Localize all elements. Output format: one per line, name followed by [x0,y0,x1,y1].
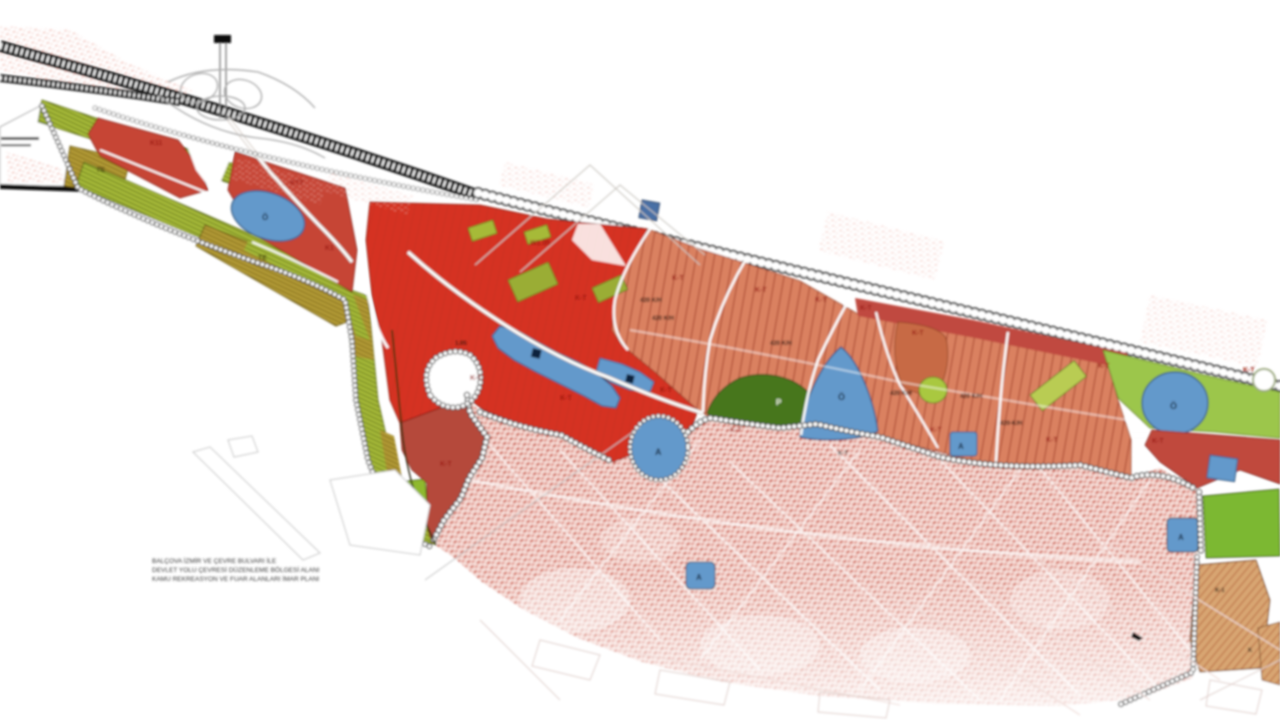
svg-text:TE: TE [96,167,105,174]
svg-text:BALÇOVA İZMİR VE ÇEVRE BULVARI: BALÇOVA İZMİR VE ÇEVRE BULVARI İLE [152,556,277,565]
svg-text:KAMU REKREASYON VE FUAR ALANLA: KAMU REKREASYON VE FUAR ALANLARI İMAR PL… [152,574,319,583]
svg-text:K-T: K-T [560,395,572,402]
svg-text:Ö: Ö [838,392,845,402]
svg-text:K-T: K-T [575,295,587,302]
svg-text:TE: TE [258,255,267,262]
svg-text:A: A [655,447,662,457]
svg-text:K-T: K-T [755,287,767,294]
svg-text:A: A [696,573,702,582]
svg-text:Ö: Ö [262,213,268,222]
svg-text:K-1: K-1 [1215,588,1225,594]
svg-text:K-T: K-T [672,275,684,282]
svg-text:1.05: 1.05 [455,341,467,347]
svg-text:K-T: K-T [815,297,827,304]
svg-text:K-T: K-T [930,427,942,434]
svg-text:K-T: K-T [838,451,848,457]
svg-text:420 K/H: 420 K/H [640,298,662,304]
svg-text:DEVLET YOLU ÇEVRESİ DÜZENLEME: DEVLET YOLU ÇEVRESİ DÜZENLEME BÖLGESİ AL… [152,565,320,574]
svg-text:K-T: K-T [440,461,452,468]
svg-text:P: P [776,398,782,407]
svg-text:K-T: K-T [1152,438,1164,445]
svg-text:KTT: KTT [290,180,304,187]
svg-text:420 K/H: 420 K/H [890,391,912,397]
svg-text:Ö: Ö [1170,401,1177,411]
svg-text:420-K/H: 420-K/H [1000,421,1022,427]
svg-text:420 K/H: 420 K/H [770,341,792,347]
svg-text:K-T: K-T [730,427,742,434]
svg-text:K-T: K-T [860,305,872,312]
svg-text:K1: K1 [325,245,334,252]
svg-text:K-T: K-T [1046,437,1058,444]
svg-text:K: K [1248,648,1253,654]
svg-text:A: A [1178,533,1184,542]
svg-text:W1.05: W1.05 [530,240,550,247]
svg-text:420 K/H: 420 K/H [960,394,982,400]
svg-text:K11: K11 [150,140,163,147]
svg-text:K-T: K-T [660,387,672,394]
svg-text:K-T: K-T [1243,367,1255,374]
svg-text:420 K/H: 420 K/H [652,316,674,322]
svg-text:K-T: K-T [912,330,924,337]
svg-text:K-T: K-T [1098,363,1110,370]
svg-text:K-T: K-T [470,375,482,382]
svg-text:A: A [958,442,964,451]
